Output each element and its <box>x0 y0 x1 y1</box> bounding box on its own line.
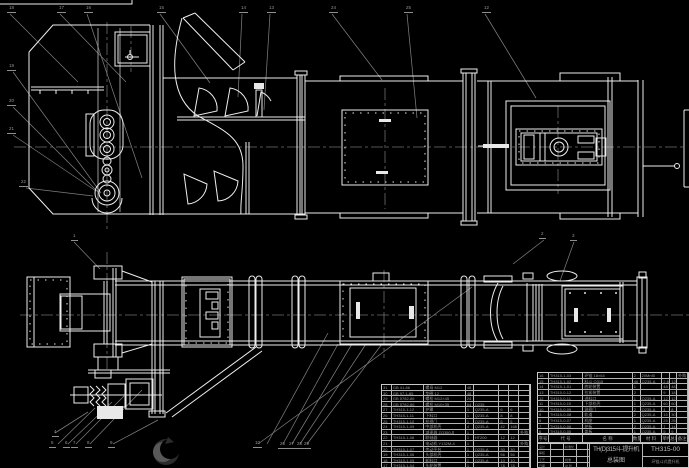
bom-cell <box>677 418 688 423</box>
bom-cell <box>499 430 509 435</box>
bom-cell <box>392 441 425 446</box>
bom-cell: 1 <box>466 458 474 463</box>
bom-cell: 2 <box>633 424 641 429</box>
chain-sprocket-assembly <box>86 110 123 213</box>
bom-cell: 外购 <box>519 430 530 435</box>
bom-cell: 56 <box>509 452 519 457</box>
bom-cell: TH315-1-04 <box>392 463 425 468</box>
bom-cell: 2 <box>633 407 641 412</box>
bom-cell <box>499 391 509 396</box>
bom-cell: 备注 <box>677 435 688 442</box>
item-callout-number: 15 <box>157 6 166 13</box>
bom-cell: 外购 <box>677 373 688 378</box>
bom-cell: 环链 18×64 <box>583 373 632 378</box>
bom-cell: 垫圈 12 <box>424 391 465 396</box>
bom-cell: Q235-A <box>641 412 663 417</box>
item-callout-number: 20 <box>7 99 16 106</box>
bom-cell <box>641 384 663 389</box>
sheet-frame-corner <box>0 0 132 4</box>
item-callout-number: 14 <box>239 6 248 13</box>
bom-cell: 8 <box>509 413 519 418</box>
bom-cell: 21 <box>382 441 392 446</box>
bom-cell: 15 <box>538 379 549 384</box>
bom-cell: 2 <box>633 412 641 417</box>
bom-cell: 14 <box>670 424 677 429</box>
bom-cell: TH315-0-09 <box>549 407 584 412</box>
bom-cell: 78 <box>509 463 519 468</box>
bom-cell: 序号 <box>538 435 549 442</box>
item-callout-number: 18 <box>7 6 16 13</box>
bom-cell: 单件 <box>662 435 670 442</box>
drawing-title-cell: TH(D)315斗-提升机 总装图 <box>589 444 643 467</box>
bom-cell: 31 <box>382 385 392 390</box>
bom-cell: 60 <box>662 401 670 406</box>
bom-cell: 10 <box>509 458 519 463</box>
bom-cell: 2 <box>633 390 641 395</box>
bom-cell <box>474 391 500 396</box>
bom-cell <box>677 379 688 384</box>
bom-cell: 拉紧装置 <box>583 390 632 395</box>
bom-cell <box>519 435 530 440</box>
bom-cell: 检视门 <box>424 419 465 424</box>
item-callout-number: 5 <box>49 441 56 448</box>
bom-cell: Q235-A <box>474 452 500 457</box>
bom-cell: 19 <box>382 452 392 457</box>
bom-cell: 1 <box>466 430 474 435</box>
bom-cell: GB 5782-86 <box>392 402 425 407</box>
bom-cell: 8 <box>670 407 677 412</box>
bom-cell <box>519 447 530 452</box>
bom-cell: Q235-A <box>474 424 500 429</box>
item-callout-number: 29 <box>302 442 311 449</box>
bom-cell <box>392 430 425 435</box>
bom-cell: 48 <box>466 391 474 396</box>
bom-cell: 11 <box>538 401 549 406</box>
bom-cell: 1 <box>466 413 474 418</box>
bom-cell: 30 <box>382 391 392 396</box>
bom-cell: 护罩 <box>424 407 465 412</box>
bom-cell: 28 <box>382 402 392 407</box>
bom-cell: 护板 <box>583 424 632 429</box>
bom-cell: 设计 <box>538 444 551 449</box>
bom-cell <box>677 407 688 412</box>
bom-cell: 12 <box>509 435 519 440</box>
bom-cell: 1 <box>466 452 474 457</box>
plan-curved-transition <box>484 271 577 354</box>
bom-cell: 4 <box>466 424 474 429</box>
bom-cell: 料斗 Q315 <box>583 379 632 384</box>
bom-cell: TH315-0-10 <box>549 401 584 406</box>
bom-cell: 卸料口 <box>424 458 465 463</box>
bom-cell: 42 <box>499 424 509 429</box>
bom-cell <box>509 402 519 407</box>
item-callout-number: 6 <box>63 441 70 448</box>
bom-cell: 总计 <box>670 435 677 442</box>
bom-cell: 25 <box>382 419 392 424</box>
bom-cell: 进料口 <box>583 396 632 401</box>
bom-cell <box>677 390 688 395</box>
bom-cell: TH315-1-07 <box>392 447 425 452</box>
bom-cell <box>519 419 530 424</box>
bom-cell: Q235-A <box>474 447 500 452</box>
bom-cell: TH315-1-12 <box>392 407 425 412</box>
header-row: 序号代 号名 称数量材 料单件总计备注 <box>538 435 688 443</box>
bom-cell: 12 <box>662 396 670 401</box>
bom-cell: TH315-0-07 <box>549 418 584 423</box>
bom-cell: TH315-1-02 <box>549 379 584 384</box>
bom-cell: TH315-1-10 <box>392 419 425 424</box>
bom-cell <box>509 441 519 446</box>
bom-cell: 下部机壳 <box>583 401 632 406</box>
bom-cell: 22 <box>382 435 392 440</box>
bom-cell: 64 <box>466 402 474 407</box>
bom-cell: TH315-1-08 <box>392 435 425 440</box>
bom-cell: 23 <box>382 430 392 435</box>
bom-cell: 12 <box>670 396 677 401</box>
item-callout-number: 21 <box>7 127 16 134</box>
bom-cell: 批准 <box>564 457 577 462</box>
item-callout-number: 26 <box>278 442 287 449</box>
cad-drawing-canvas: 1817161514132425121920212212345678910262… <box>0 0 689 468</box>
bom-cell <box>509 396 519 401</box>
item-callout-number: 4 <box>52 430 59 437</box>
centerlines <box>14 22 689 372</box>
bom-cell: 减速器 ZQ350-Ⅱ <box>424 430 465 435</box>
bom-cell: 8 <box>538 418 549 423</box>
item-callout-number: 2 <box>539 232 546 239</box>
plan-discharge-chute <box>149 281 262 417</box>
bom-cell: 18 <box>670 390 677 395</box>
bom-cell: 29 <box>382 396 392 401</box>
bom-cell <box>577 457 588 462</box>
bom-cell: 26 <box>382 413 392 418</box>
bom-cell: 共 张 <box>564 463 577 468</box>
bom-cell <box>662 373 670 378</box>
drawing-subtitle: 环链斗式提升机 <box>643 457 688 467</box>
bom-cell: 螺栓 M12×45 <box>424 396 465 401</box>
bom-cell: 螺栓 M10×35 <box>424 402 465 407</box>
bom-cell: 1 <box>466 463 474 468</box>
bom-cell <box>677 384 688 389</box>
bom-cell <box>499 441 509 446</box>
bom-cell: 25 <box>662 418 670 423</box>
bom-cell <box>577 444 588 449</box>
bom-cell: 13 <box>538 390 549 395</box>
bom-cell: 18 <box>382 458 392 463</box>
bom-cell: 7 <box>538 424 549 429</box>
bom-cell <box>564 450 577 455</box>
bom-cell <box>519 463 530 468</box>
bom-cell: GB 5782-86 <box>392 396 425 401</box>
bom-cell: 1 <box>633 384 641 389</box>
signature-row: 日期共 张 <box>538 463 589 468</box>
bom-cell <box>519 396 530 401</box>
table-row: 17TH315-1-04头轮装置17878 <box>382 463 530 468</box>
bom-cell <box>474 463 500 468</box>
bom-cell: 78 <box>499 463 509 468</box>
item-callout-number: 12 <box>482 6 491 13</box>
bom-cell: 20MnSi <box>641 373 663 378</box>
item-callout-number: 17 <box>57 6 66 13</box>
bom-cell: 20 <box>382 447 392 452</box>
bom-cell: 头部机壳 <box>424 452 465 457</box>
bom-cell <box>641 390 663 395</box>
bom-cell: 2 <box>633 373 641 378</box>
bom-cell <box>499 396 509 401</box>
bom-cell: 24 <box>382 424 392 429</box>
bom-cell <box>677 424 688 429</box>
bom-cell: 9 <box>538 412 549 417</box>
bom-cell: Q235-A <box>641 418 663 423</box>
chute-and-buckets <box>110 13 305 214</box>
bom-cell <box>474 430 500 435</box>
bom-cell: HT200 <box>474 435 500 440</box>
bom-cell: 代 号 <box>549 435 584 442</box>
bom-cell: 120 <box>670 379 677 384</box>
bom-cell: 16 <box>538 373 549 378</box>
bom-cell: 日期 <box>538 463 551 468</box>
bom-cell: Q235-A <box>641 396 663 401</box>
bom-cell <box>499 402 509 407</box>
bom-cell: TH315-1-01 <box>549 384 584 389</box>
bom-cell: 10 <box>499 458 509 463</box>
bom-cell: Q235-A <box>474 419 500 424</box>
bom-cell <box>677 412 688 417</box>
bom-cell <box>519 413 530 418</box>
bom-cell: 轨道 <box>583 412 632 417</box>
bom-cell: 15 <box>662 412 670 417</box>
bom-cell: 审核 <box>538 450 551 455</box>
bom-cell: TH315-0-06 <box>549 424 584 429</box>
bom-cell: 材 料 <box>641 435 663 442</box>
bom-cell: 9 <box>662 390 670 395</box>
bom-cell <box>551 444 564 449</box>
bom-cell: 观察门 <box>583 407 632 412</box>
bom-cell: 17 <box>382 463 392 468</box>
bom-cell: 6 <box>499 407 509 412</box>
bom-cell: 1 <box>633 401 641 406</box>
bom-cell: Q235-A <box>641 424 663 429</box>
item-callout-number: 1 <box>71 234 78 241</box>
bom-cell <box>551 457 564 462</box>
bom-cell: TH315-0-08 <box>549 412 584 417</box>
plan-head-housing <box>27 266 152 357</box>
bom-cell: GB 41-86 <box>392 385 425 390</box>
bom-cell: 机座 <box>583 418 632 423</box>
signature-grid: 设计标准化审核工艺批准日期共 张 <box>538 444 589 467</box>
product-title: TH(D)315斗-提升机 <box>590 444 642 456</box>
item-callout-number: 13 <box>267 6 276 13</box>
bom-cell: 12 <box>538 396 549 401</box>
bom-cell: Q235-A <box>474 407 500 412</box>
bom-table-left: 31GB 41-86螺母 M124830GB 97.1-85垫圈 124829G… <box>381 384 531 468</box>
bom-cell <box>509 430 519 435</box>
bom-cell <box>519 385 530 390</box>
bom-cell <box>519 458 530 463</box>
bom-cell: 1 <box>633 396 641 401</box>
item-callout-number: 25 <box>404 6 413 13</box>
bom-cell: 12 <box>499 435 509 440</box>
item-callout-number: 7 <box>71 441 78 448</box>
bom-cell: 下料口 <box>424 413 465 418</box>
bom-cell: 5 <box>499 419 509 424</box>
bom-cell <box>519 407 530 412</box>
bom-cell: 10 <box>538 407 549 412</box>
bom-cell: TH315-1-09 <box>392 424 425 429</box>
bom-cell: 14 <box>538 384 549 389</box>
item-callout-number: 22 <box>19 180 28 187</box>
bom-cell <box>499 385 509 390</box>
bom-cell: 2.6 <box>662 379 670 384</box>
bom-cell: Q235-A <box>641 401 663 406</box>
bom-cell: 1 <box>466 407 474 412</box>
bom-cell: TH315-1-06 <box>392 452 425 457</box>
plan-inlet-box <box>182 277 232 347</box>
item-callout-number: 24 <box>329 6 338 13</box>
bom-cell: 1 <box>466 447 474 452</box>
bom-cell <box>577 463 588 468</box>
bom-cell: 30 <box>499 447 509 452</box>
bom-cell: 联轴器 <box>424 435 465 440</box>
drawing-number: TH315-00 <box>643 444 688 457</box>
bom-cell: 4 <box>662 407 670 412</box>
bom-cell: 30 <box>670 412 677 417</box>
bom-cell: Q235-A <box>474 458 500 463</box>
bom-cell: TH315-1-05 <box>392 458 425 463</box>
bom-cell: 30 <box>509 447 519 452</box>
bom-cell: TH315-1-03 <box>549 373 584 378</box>
bom-cell: TH315-0-12 <box>549 390 584 395</box>
bom-cell: 46 <box>633 379 641 384</box>
bom-cell: 1 <box>633 418 641 423</box>
bom-cell <box>519 424 530 429</box>
bom-cell: 5 <box>509 419 519 424</box>
bom-cell: 1 <box>466 435 474 440</box>
bom-cell: TH315-0-11 <box>549 396 584 401</box>
bom-cell: 6 <box>509 407 519 412</box>
item-callout-number: 8 <box>85 441 92 448</box>
bom-cell: 传动平台 <box>424 447 465 452</box>
bom-cell: 48 <box>662 384 670 389</box>
drawing-number-cell: TH315-00 环链斗式提升机 <box>643 444 688 467</box>
bom-cell: Q235-A <box>474 413 500 418</box>
bom-cell: 标准化 <box>564 444 577 449</box>
bom-cell: 56 <box>499 452 509 457</box>
item-callout-number: 3 <box>570 234 577 241</box>
bom-cell: 数量 <box>633 435 641 442</box>
bom-cell: 头轮装置 <box>424 463 465 468</box>
bom-cell <box>474 441 500 446</box>
item-callout-number: 19 <box>7 64 16 71</box>
bom-cell <box>509 391 519 396</box>
bom-cell: 48 <box>466 385 474 390</box>
bom-cell <box>519 391 530 396</box>
bom-cell: 60 <box>670 401 677 406</box>
bom-cell: 工艺 <box>538 457 551 462</box>
bom-cell: 外购 <box>519 441 530 446</box>
bom-cell: 电动机 Y132M-4 <box>424 441 465 446</box>
bom-cell <box>577 450 588 455</box>
bom-cell: Q235 <box>474 402 500 407</box>
drawing-type: 总装图 <box>590 456 642 466</box>
bom-cell <box>670 373 677 378</box>
bom-cell: Q235-A <box>641 407 663 412</box>
bom-cell: 底轮装置 <box>583 384 632 389</box>
bom-cell: 25 <box>670 418 677 423</box>
bom-cell <box>519 402 530 407</box>
bom-cell: 48 <box>670 384 677 389</box>
bom-cell: 名 称 <box>583 435 632 442</box>
bom-cell: 螺母 M12 <box>424 385 465 390</box>
bom-cell: Q235-A <box>641 379 663 384</box>
bom-cell <box>677 401 688 406</box>
bom-cell: 7 <box>662 424 670 429</box>
bom-cell: 1 <box>466 419 474 424</box>
bom-cell <box>509 385 519 390</box>
bom-cell: 24 <box>466 396 474 401</box>
watermark-crescent <box>153 437 180 465</box>
bom-header-row: 序号代 号名 称数量材 料单件总计备注 <box>537 434 689 443</box>
item-callout-number: 16 <box>84 6 93 13</box>
bom-cell <box>474 385 500 390</box>
bom-cell <box>551 463 564 468</box>
bom-cell: 168 <box>509 424 519 429</box>
bom-cell: GB 97.1-85 <box>392 391 425 396</box>
bom-cell <box>677 396 688 401</box>
item-callout-number: 9 <box>108 441 115 448</box>
bom-cell <box>551 450 564 455</box>
bom-cell: 1 <box>466 441 474 446</box>
bom-cell: 27 <box>382 407 392 412</box>
upper-view-elevation <box>29 13 689 225</box>
bom-table-right: 16TH315-1-03环链 18×64220MnSi外购15TH315-1-0… <box>537 372 689 434</box>
bom-cell <box>519 452 530 457</box>
bom-cell: 8 <box>499 413 509 418</box>
bom-cell: 中部机壳 <box>424 424 465 429</box>
item-callout-number: 10 <box>253 441 262 448</box>
bom-cell <box>474 396 500 401</box>
title-block: 设计标准化审核工艺批准日期共 张 TH(D)315斗-提升机 总装图 TH315… <box>537 443 689 468</box>
bom-cell: TH315-1-11 <box>392 413 425 418</box>
takeup-section <box>477 73 689 219</box>
